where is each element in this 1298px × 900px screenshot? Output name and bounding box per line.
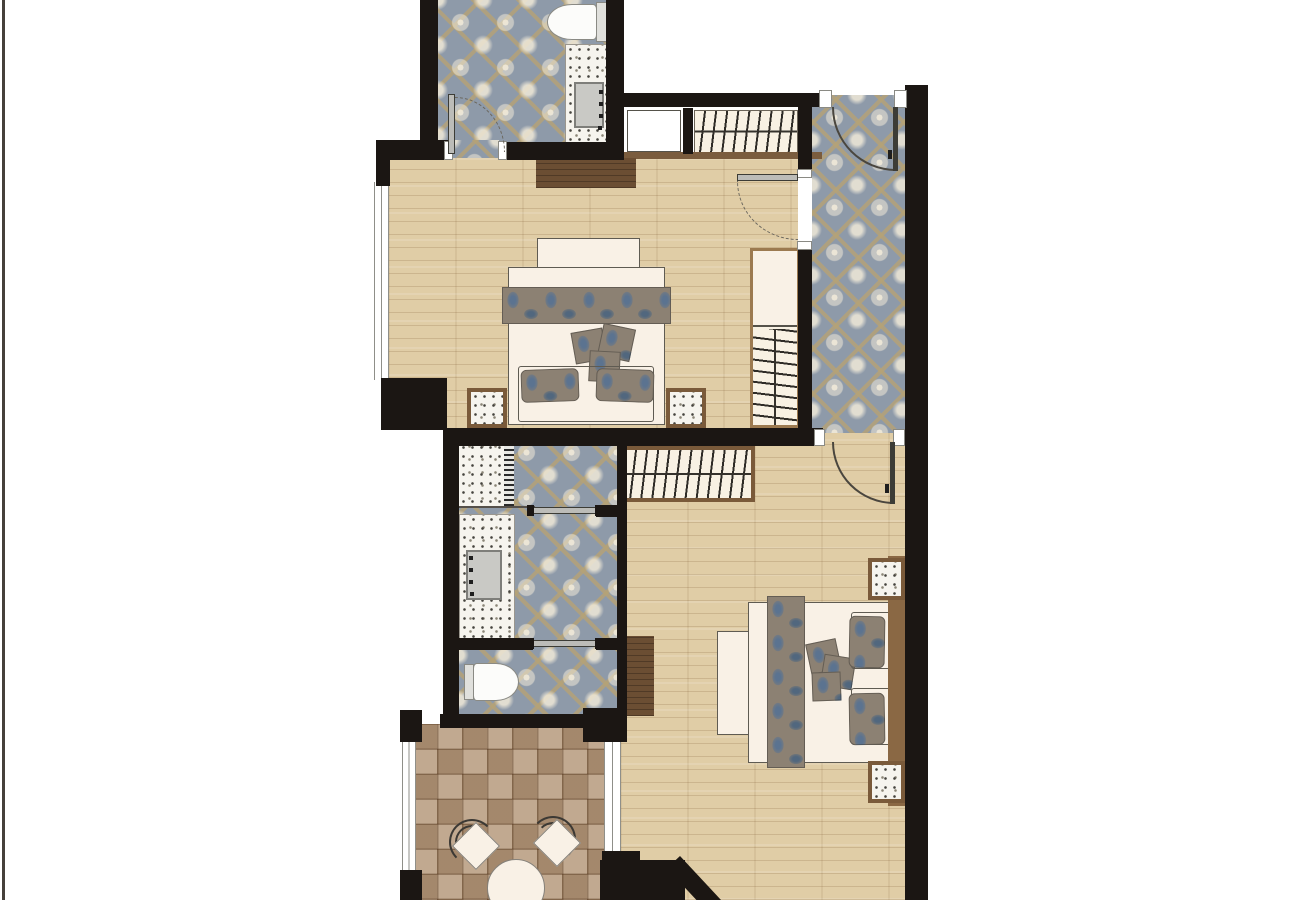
faucet: [469, 556, 473, 560]
bed-1-pillow: [520, 368, 579, 403]
wall-segment: [443, 428, 823, 446]
nightstand: [666, 388, 706, 428]
wall-segment: [606, 0, 624, 160]
bed-2-cushion: [812, 672, 842, 702]
bed-2-bench: [717, 631, 750, 735]
wall-segment: [420, 0, 438, 160]
wardrobe: [750, 248, 800, 428]
bedroom-2-closet-hangers: [626, 450, 751, 498]
door-cap: [595, 505, 602, 516]
terrace-door-window: [604, 740, 621, 853]
entry-shelf-cabinet: [627, 110, 681, 152]
closet-divider: [683, 108, 693, 154]
closet-wood-trim: [624, 152, 822, 159]
sliding-door-wc: [533, 640, 596, 647]
door-post: [797, 169, 812, 178]
entry-door-leaf: [893, 107, 898, 171]
sliding-door-shower: [533, 507, 596, 514]
bathroom-sink: [574, 82, 604, 128]
wall-segment: [798, 107, 812, 177]
bed-1-bench: [537, 238, 640, 268]
bed-1-runner: [502, 287, 671, 324]
bedroom-2-closet: [622, 446, 755, 502]
wall-segment: [400, 710, 422, 742]
wall-segment-outer-right: [905, 85, 928, 900]
wall-segment: [583, 708, 627, 742]
bedroom-1-window: [374, 182, 389, 380]
page-border-line: [2, 0, 5, 900]
bed-2-runner: [767, 596, 805, 768]
nightstand: [868, 558, 905, 600]
bathroom-top-door-leaf: [448, 94, 455, 154]
bedroom-2-door-leaf: [890, 442, 895, 504]
faucet: [599, 90, 603, 94]
door-post: [819, 90, 832, 108]
wall-segment: [617, 430, 627, 720]
wall-segment: [400, 870, 422, 900]
door-cap: [527, 638, 534, 649]
toilet: [547, 4, 597, 40]
nightstand: [868, 761, 905, 803]
bed-2-pillow: [849, 616, 886, 669]
door-post: [797, 241, 812, 250]
wardrobe-hangers: [753, 329, 797, 425]
bed-2-pillow: [849, 693, 886, 746]
floorplan-canvas: [0, 0, 1298, 900]
wall-segment: [606, 93, 822, 107]
partition-line: [459, 506, 535, 508]
door-cap: [595, 638, 602, 649]
bed-1-pillow: [595, 368, 654, 403]
media-console: [536, 158, 636, 188]
entry-closet-hangers: [694, 110, 798, 153]
wall-segment: [376, 140, 390, 186]
wall-segment: [798, 243, 812, 435]
wall-segment: [381, 378, 447, 430]
bedroom-1-door-leaf: [737, 174, 798, 181]
door-cap: [527, 505, 534, 516]
door-post: [814, 429, 825, 446]
wall-segment: [443, 638, 533, 650]
wardrobe-shelf: [753, 251, 797, 327]
door-post: [894, 90, 907, 108]
nightstand: [467, 388, 507, 428]
terrace-window: [402, 742, 416, 872]
wall-segment: [443, 428, 459, 720]
toilet: [473, 663, 519, 701]
wall-segment: [505, 142, 606, 160]
